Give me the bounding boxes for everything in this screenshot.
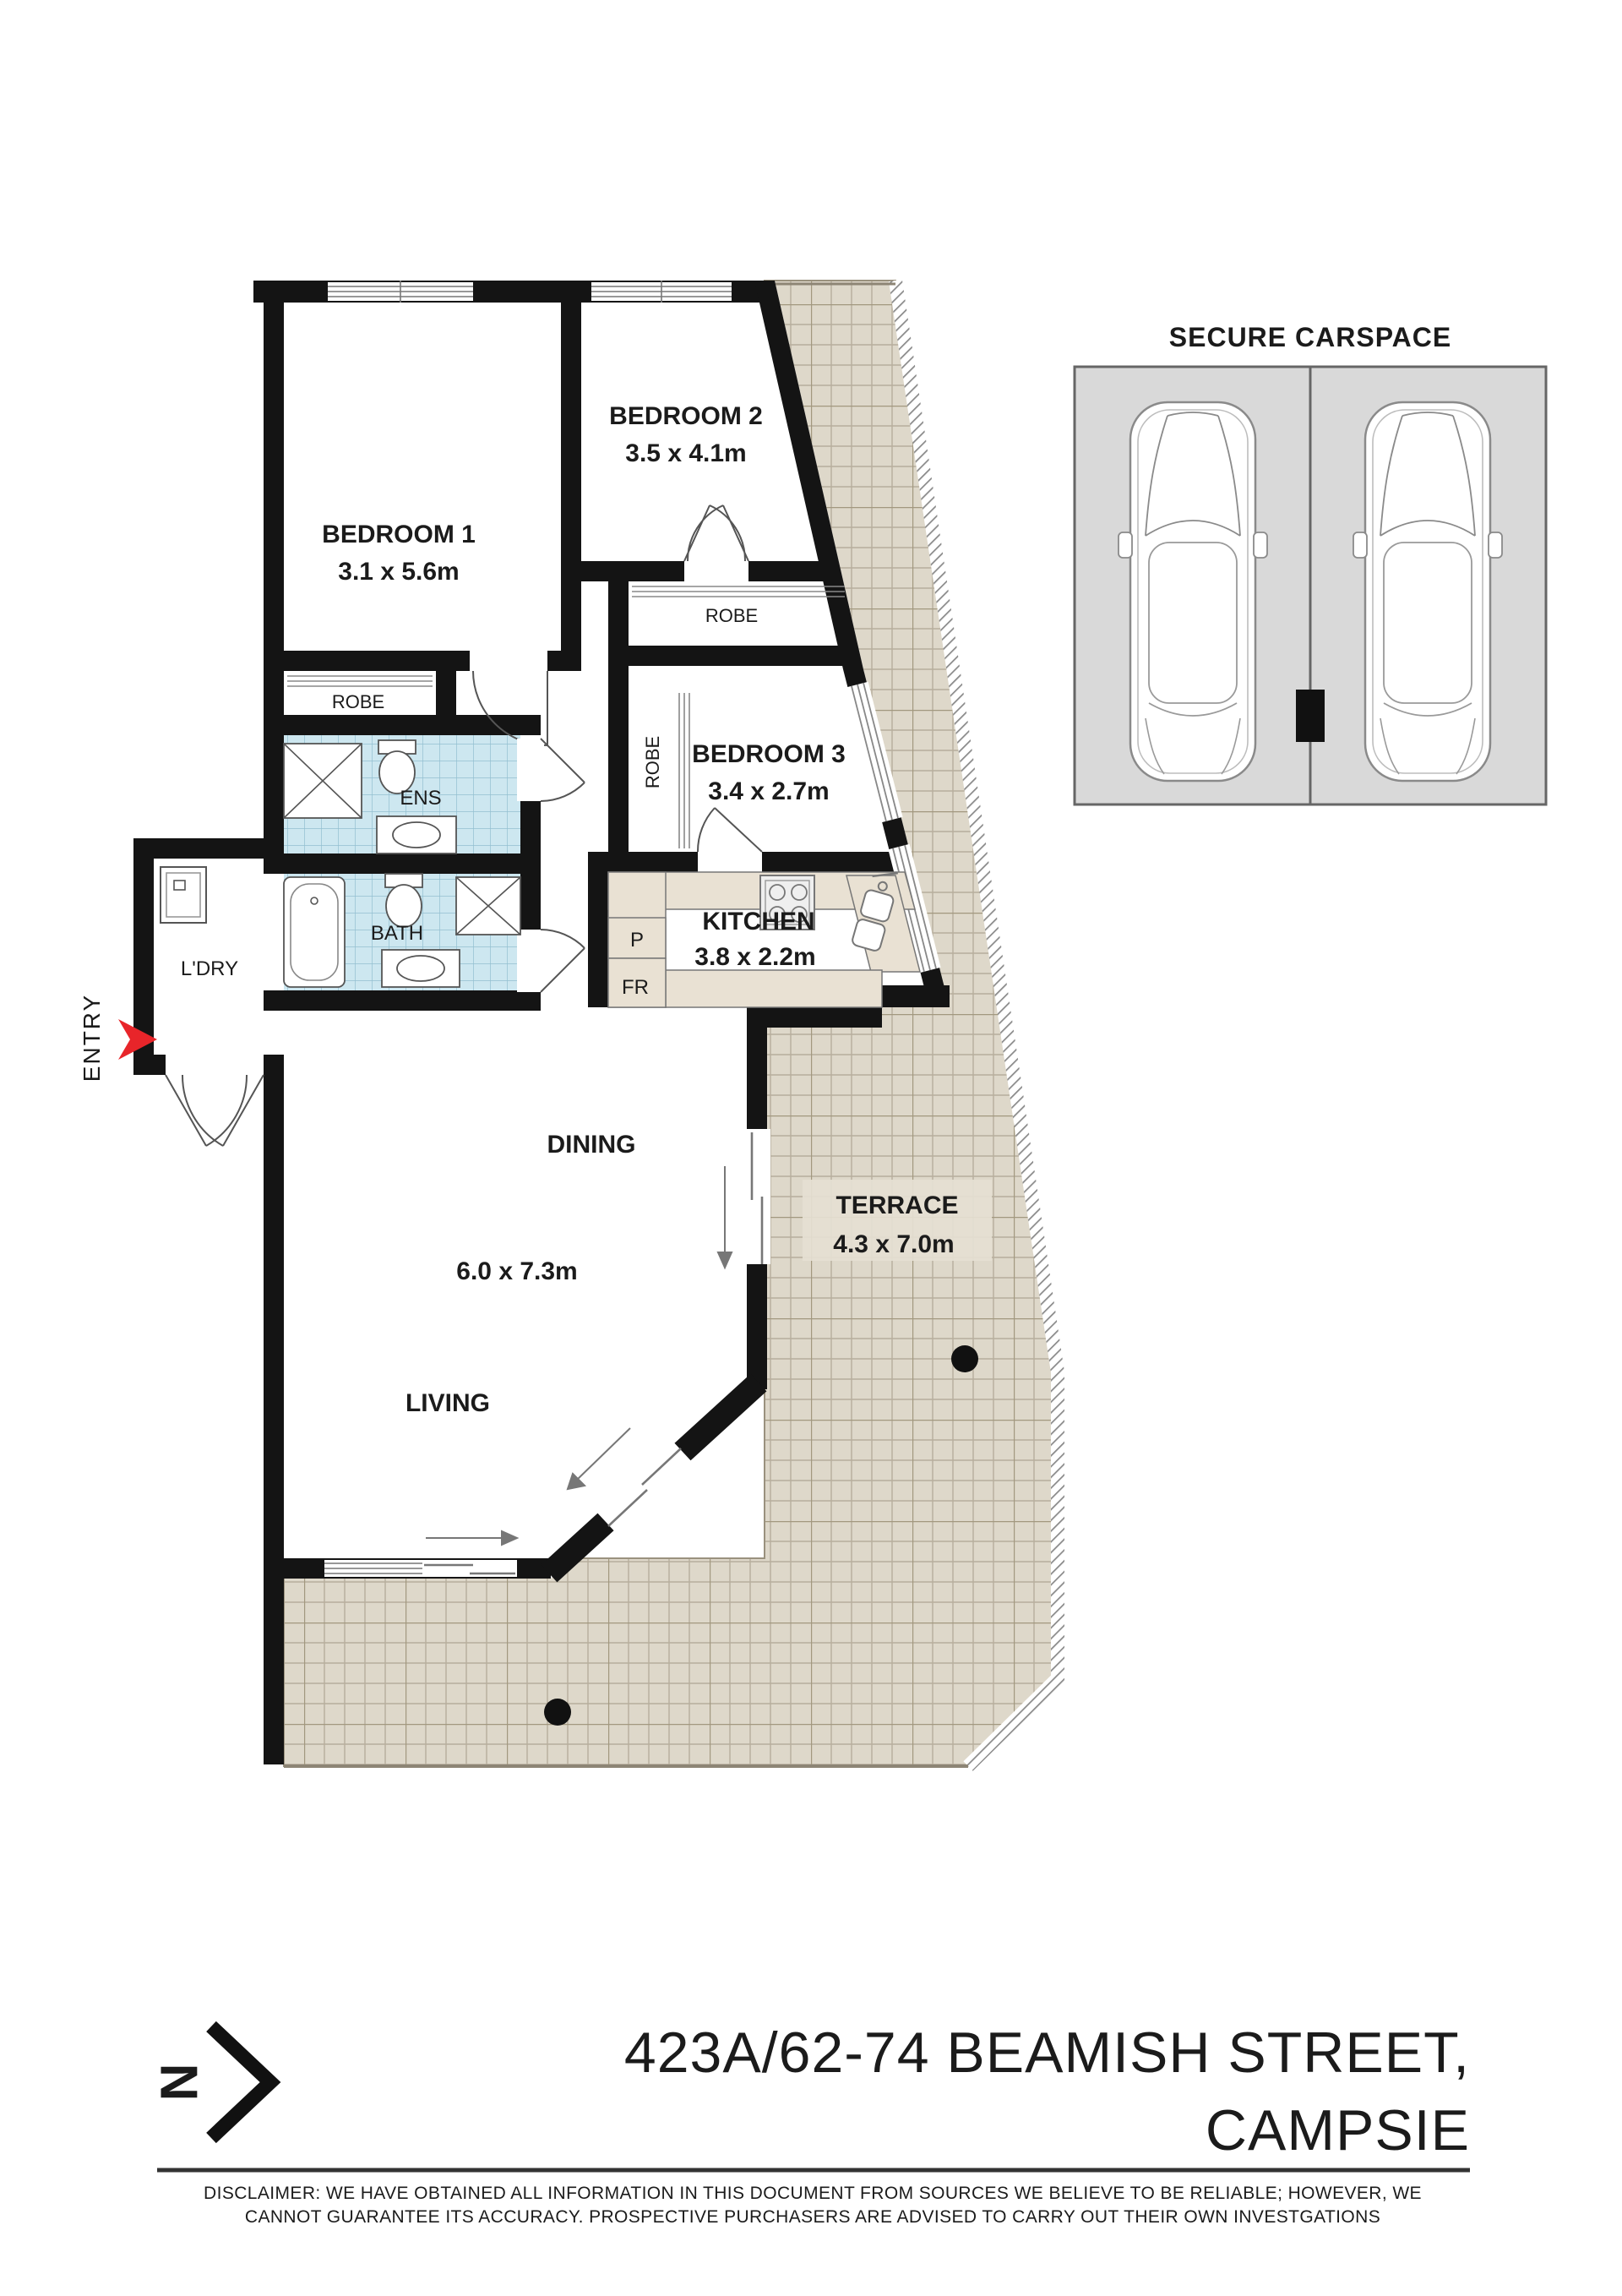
floorplan-canvas: TERRACE 4.3 x 7.0m (0, 0, 1622, 2296)
secure-carspace: SECURE CARSPACE (1075, 322, 1546, 804)
disclaimer-line2: CANNOT GUARANTEE ITS ACCURACY. PROSPECTI… (245, 2207, 1380, 2227)
laundry-label: L'DRY (181, 957, 238, 980)
floorplan-page: TERRACE 4.3 x 7.0m (0, 0, 1622, 2296)
bedroom3-label: BEDROOM 3 (692, 740, 846, 768)
kitchen-dims: 3.8 x 2.2m (694, 943, 815, 971)
entry-label: ENTRY (79, 994, 105, 1082)
bedroom1-dims: 3.1 x 5.6m (338, 558, 459, 586)
address-line1: 423A/62-74 BEAMISH STREET, (624, 2021, 1470, 2085)
dining-label: DINING (547, 1131, 636, 1159)
north-chevron-icon (211, 2026, 270, 2138)
terrace-column-dot (951, 1345, 978, 1372)
bedroom2-dims: 3.5 x 4.1m (625, 439, 746, 467)
carspace-title: SECURE CARSPACE (1169, 322, 1451, 352)
disclaimer-line1: DISCLAIMER: WE HAVE OBTAINED ALL INFORMA… (204, 2184, 1422, 2203)
fridge-label: FR (622, 976, 649, 999)
car-icon (1353, 402, 1502, 781)
kitchen-label: KITCHEN (702, 908, 814, 935)
bedroom1-label: BEDROOM 1 (322, 521, 476, 548)
living-dining-dims: 6.0 x 7.3m (456, 1257, 577, 1285)
terrace-column-dot (544, 1699, 571, 1726)
bathroom-label: BATH (371, 922, 423, 945)
footer: 423A/62-74 BEAMISH STREET, CAMPSIE DISCL… (157, 2021, 1470, 2227)
ensuite-label: ENS (400, 787, 441, 810)
living-label: LIVING (405, 1389, 490, 1417)
robe-bed2-label: ROBE (705, 605, 758, 626)
north-letter: N (150, 2064, 208, 2102)
bedroom2-label: BEDROOM 2 (609, 402, 763, 430)
pantry-label: P (630, 929, 644, 952)
terrace-dims: 4.3 x 7.0m (833, 1230, 954, 1258)
robe-bed3-label: ROBE (642, 736, 663, 788)
washing-machine-icon (161, 867, 206, 923)
terrace-label: TERRACE (835, 1192, 958, 1219)
north-arrow: N (150, 2026, 270, 2138)
dining-slider-door (743, 1129, 770, 1264)
carspace-marker (1296, 690, 1325, 742)
robe-bed1-label: ROBE (332, 691, 384, 712)
bedroom3-dims: 3.4 x 2.7m (708, 777, 829, 805)
address-line2: CAMPSIE (1206, 2098, 1470, 2162)
car-icon (1119, 402, 1267, 781)
